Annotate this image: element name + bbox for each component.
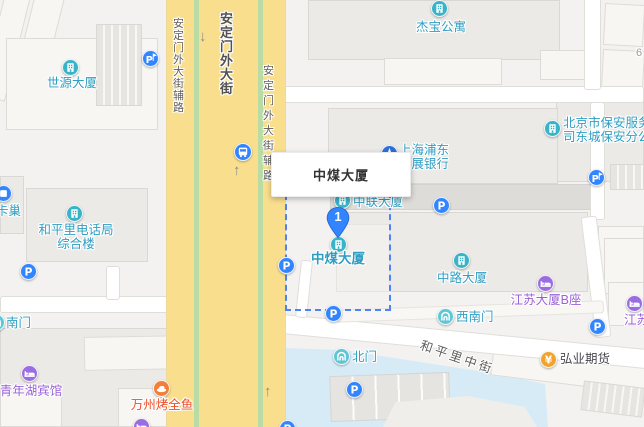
- parking-icon[interactable]: P: [589, 318, 606, 335]
- building-block: [384, 58, 502, 85]
- hongye-qihuo-label[interactable]: 弘业期货: [560, 352, 610, 366]
- zhonglu-dasha-icon[interactable]: [453, 252, 470, 269]
- svg-text:P: P: [283, 422, 291, 427]
- traffic-direction-arrow: ↓: [199, 28, 207, 45]
- building-block: [603, 3, 644, 47]
- wanzhou-kaoquanyu-label[interactable]: 万州烤全鱼: [131, 398, 194, 412]
- svg-text:P: P: [350, 383, 358, 396]
- road-label-andingmenwai-dajie: 安定门外大街: [218, 12, 235, 96]
- zhongmei-dasha-label[interactable]: 中煤大厦: [311, 252, 365, 266]
- pin-number: 1: [324, 209, 352, 224]
- traffic-direction-arrow: ↑: [264, 383, 272, 400]
- zhonglian-dasha-label[interactable]: 中联大厦: [353, 195, 403, 209]
- shiyuan-dasha-icon[interactable]: [62, 59, 79, 76]
- map-pin-1[interactable]: 1: [324, 206, 352, 240]
- jiangsu-dasha-b-zuo-icon[interactable]: [537, 275, 554, 292]
- jiangsu-partial-icon[interactable]: [626, 295, 643, 312]
- parking-entrance-icon[interactable]: P: [142, 50, 159, 67]
- beimen-gate-label[interactable]: 北门: [352, 350, 377, 364]
- popup-title: 中煤大厦: [313, 165, 369, 184]
- qingnianhu-binguan-icon[interactable]: [21, 365, 38, 382]
- parking-icon[interactable]: P: [278, 257, 295, 274]
- parking-structure: [610, 164, 644, 190]
- road-ref-6: 6: [636, 47, 642, 59]
- road-horizontal-south-west: [0, 296, 180, 313]
- svg-text:P: P: [591, 173, 598, 184]
- qingnianhu-binguan-label[interactable]: 青年湖宾馆: [0, 384, 62, 398]
- svg-text:P: P: [437, 199, 445, 212]
- jiangsu-dasha-b-zuo-label[interactable]: 江苏大厦B座: [511, 293, 582, 307]
- beijing-baoan-fuwu-icon[interactable]: [544, 120, 561, 137]
- parking-structure: [96, 24, 142, 106]
- jiangsu-partial-label[interactable]: 江苏: [624, 313, 644, 327]
- building-block: [540, 50, 585, 80]
- info-popup[interactable]: 中煤大厦: [271, 152, 411, 197]
- svg-text:P: P: [24, 265, 32, 278]
- hongye-qihuo-icon[interactable]: ¥: [540, 351, 557, 368]
- hepingli-dianhuaju-icon[interactable]: [66, 205, 83, 222]
- hotel-partial-bottom-icon[interactable]: [133, 418, 150, 427]
- beijing-baoan-fuwu-label[interactable]: 北京市保安服务司东城保安分公: [563, 116, 644, 144]
- road-stub: [106, 266, 120, 300]
- parking-icon[interactable]: P: [433, 197, 450, 214]
- road-median: [194, 0, 199, 427]
- xinanmen-gate-icon[interactable]: [437, 308, 454, 325]
- hepingli-dianhuaju-label[interactable]: 和平里电话局综合楼: [38, 223, 113, 251]
- traffic-direction-arrow: ↑: [233, 162, 241, 179]
- parking-entrance-icon[interactable]: P: [588, 169, 605, 186]
- parking-icon[interactable]: P: [346, 381, 363, 398]
- xinanmen-gate-label[interactable]: 西南门: [456, 310, 494, 324]
- zhonglu-dasha-label[interactable]: 中路大厦: [437, 271, 487, 285]
- svg-text:¥: ¥: [544, 353, 552, 366]
- nanmen-gate-label[interactable]: 南门: [6, 316, 31, 330]
- kachao-icon[interactable]: [0, 185, 12, 202]
- shiyuan-dasha-label[interactable]: 世源大厦: [47, 76, 97, 90]
- svg-text:P: P: [593, 320, 601, 333]
- parking-icon[interactable]: P: [20, 263, 37, 280]
- svg-text:P: P: [329, 307, 337, 320]
- map-canvas[interactable]: 1 中煤大厦 安定门外大街辅路安定门外大街安定门外大街辅路和平里中街6↓↑↑世源…: [0, 0, 644, 427]
- road-vertical-east: [584, 0, 601, 90]
- parking-partial-bottom-icon[interactable]: P: [279, 420, 296, 427]
- road-label-andingmenwai-fulu-west: 安定门外大街辅路: [171, 18, 186, 114]
- parking-icon[interactable]: P: [325, 305, 342, 322]
- svg-text:P: P: [145, 54, 152, 65]
- svg-text:P: P: [282, 259, 290, 272]
- beimen-gate-icon[interactable]: [333, 348, 350, 365]
- jiebao-gongyu-label[interactable]: 杰宝公寓: [416, 20, 466, 34]
- jiebao-gongyu-icon[interactable]: [431, 0, 448, 17]
- kachao-label[interactable]: 卡巢: [0, 204, 21, 218]
- wanzhou-kaoquanyu-icon[interactable]: [153, 380, 170, 397]
- bus-stop-icon[interactable]: [234, 143, 252, 161]
- parking-structure: [580, 380, 644, 417]
